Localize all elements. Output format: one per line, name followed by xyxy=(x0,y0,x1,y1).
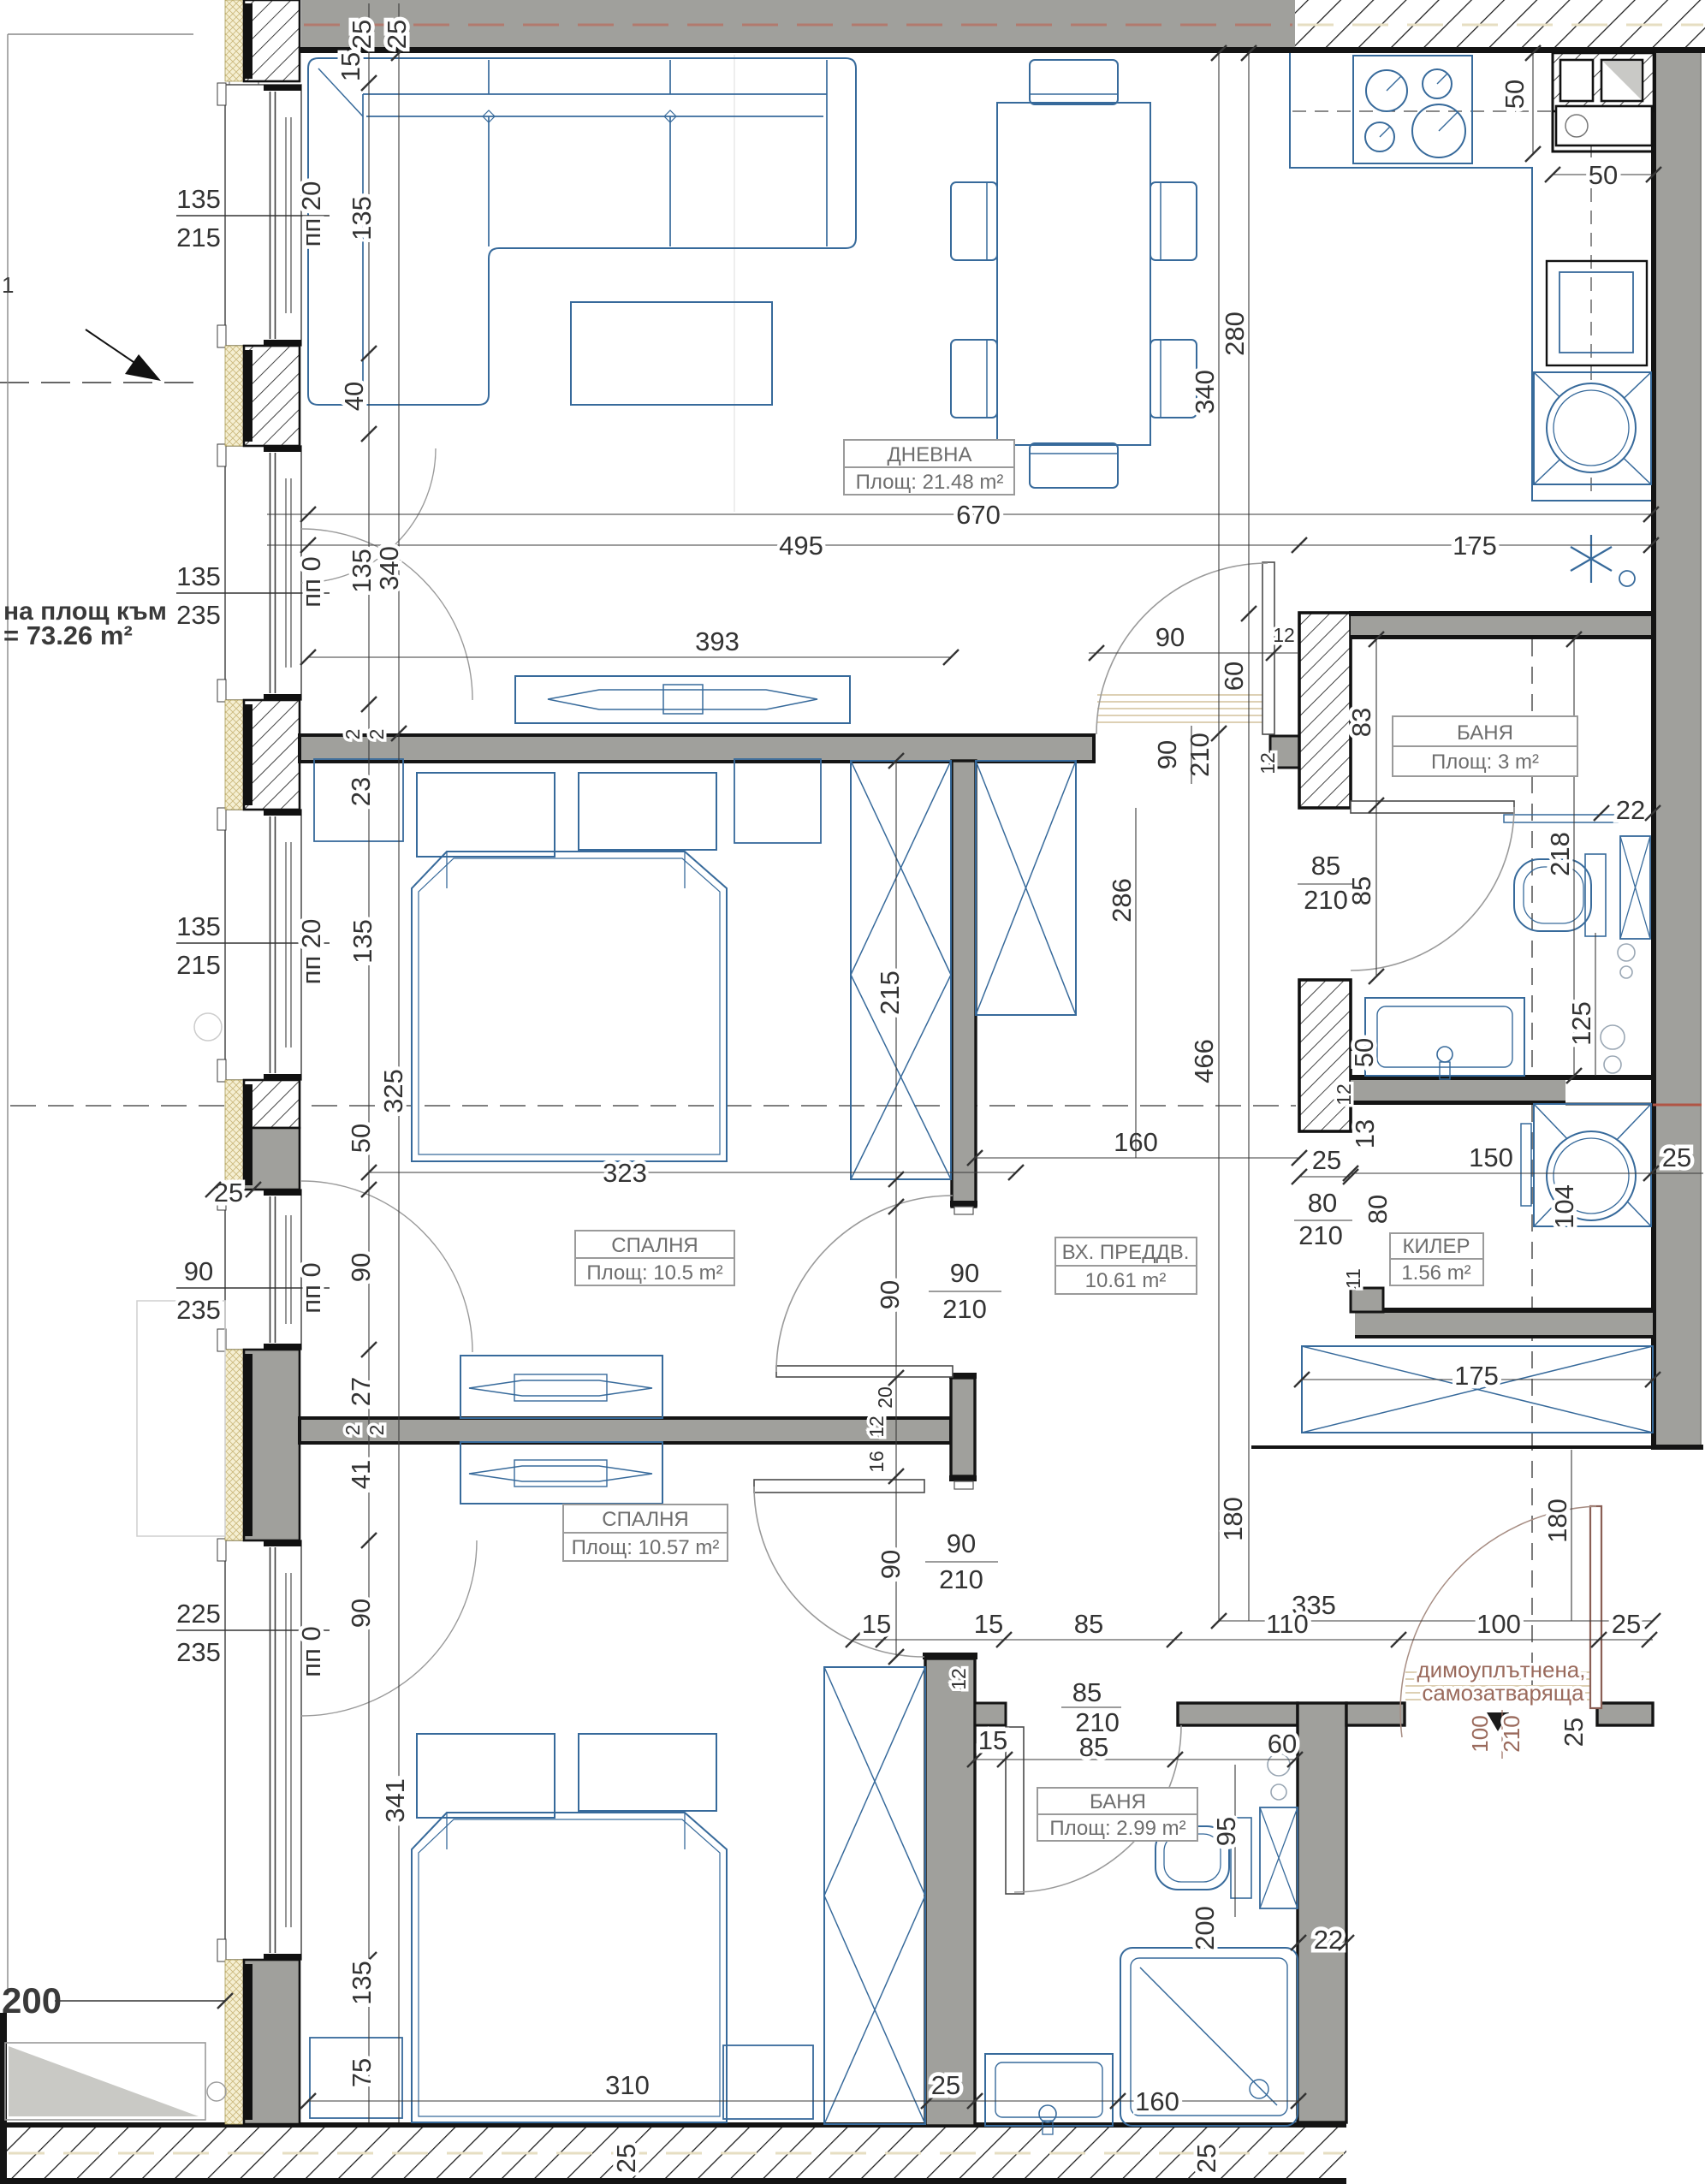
svg-text:самозатваряща: самозатваряща xyxy=(1422,1680,1584,1706)
svg-text:90: 90 xyxy=(950,1258,979,1288)
svg-text:90: 90 xyxy=(184,1256,213,1286)
svg-text:95: 95 xyxy=(1211,1817,1241,1846)
svg-text:25: 25 xyxy=(1312,1145,1341,1175)
svg-text:15: 15 xyxy=(978,1725,1007,1755)
svg-text:340: 340 xyxy=(374,546,404,591)
svg-text:Площ: 10.5 m²: Площ: 10.5 m² xyxy=(586,1261,722,1285)
svg-text:135: 135 xyxy=(347,1961,377,2005)
svg-text:41: 41 xyxy=(346,1460,376,1489)
svg-text:175: 175 xyxy=(1453,531,1497,561)
svg-text:210: 210 xyxy=(1075,1707,1120,1737)
svg-text:Площ: 21.48 m²: Площ: 21.48 m² xyxy=(856,471,1004,494)
svg-text:пп 20: пп 20 xyxy=(296,919,326,985)
svg-text:85: 85 xyxy=(1072,1677,1102,1707)
svg-text:димоуплътнена,: димоуплътнена, xyxy=(1417,1657,1585,1683)
svg-text:135: 135 xyxy=(176,911,221,941)
svg-text:СПАЛНЯ: СПАЛНЯ xyxy=(611,1234,698,1257)
svg-text:25: 25 xyxy=(1191,2144,1221,2173)
svg-text:50: 50 xyxy=(1589,160,1618,190)
svg-text:75: 75 xyxy=(347,2058,377,2087)
svg-text:БАНЯ: БАНЯ xyxy=(1090,1790,1146,1813)
svg-text:235: 235 xyxy=(176,1637,221,1667)
svg-text:135: 135 xyxy=(347,196,377,240)
svg-text:25: 25 xyxy=(214,1178,243,1208)
svg-text:215: 215 xyxy=(875,970,905,1015)
svg-text:200: 200 xyxy=(1190,1906,1220,1950)
svg-text:341: 341 xyxy=(380,1778,410,1823)
svg-text:670: 670 xyxy=(956,500,1001,530)
svg-text:ВХ. ПРЕДДВ.: ВХ. ПРЕДДВ. xyxy=(1062,1241,1190,1264)
svg-text:180: 180 xyxy=(1542,1499,1572,1543)
svg-text:150: 150 xyxy=(1469,1142,1513,1172)
svg-text:25: 25 xyxy=(931,2070,960,2100)
svg-text:25: 25 xyxy=(382,20,412,49)
svg-text:495: 495 xyxy=(779,531,823,561)
svg-text:25: 25 xyxy=(1559,1718,1589,1747)
svg-text:310: 310 xyxy=(605,2070,650,2100)
svg-text:90: 90 xyxy=(1152,740,1182,769)
svg-text:180: 180 xyxy=(1218,1497,1248,1541)
svg-text:пп 0: пп 0 xyxy=(296,556,326,607)
svg-text:340: 340 xyxy=(1190,370,1220,414)
svg-text:104: 104 xyxy=(1549,1184,1579,1229)
svg-text:2: 2 xyxy=(342,729,364,740)
svg-text:210: 210 xyxy=(1298,1220,1343,1250)
svg-text:50: 50 xyxy=(1349,1038,1379,1067)
svg-text:135: 135 xyxy=(348,919,377,964)
svg-text:12: 12 xyxy=(1256,752,1279,774)
svg-text:210: 210 xyxy=(939,1564,983,1594)
svg-text:2: 2 xyxy=(365,1425,388,1436)
svg-text:15: 15 xyxy=(862,1609,891,1639)
svg-text:85: 85 xyxy=(1346,876,1376,905)
svg-text:215: 215 xyxy=(176,950,221,980)
svg-text:СПАЛНЯ: СПАЛНЯ xyxy=(602,1508,689,1531)
svg-text:80: 80 xyxy=(1308,1188,1337,1218)
svg-text:БАНЯ: БАНЯ xyxy=(1457,721,1513,745)
svg-text:215: 215 xyxy=(176,223,221,252)
svg-text:90: 90 xyxy=(1155,622,1185,652)
svg-text:90: 90 xyxy=(876,1550,906,1579)
svg-text:323: 323 xyxy=(603,1158,647,1188)
svg-text:13: 13 xyxy=(1350,1119,1380,1148)
svg-text:60: 60 xyxy=(1268,1729,1297,1759)
svg-text:пп 0: пп 0 xyxy=(296,1262,326,1313)
svg-text:1.56 m²: 1.56 m² xyxy=(1401,1261,1470,1285)
svg-text:25: 25 xyxy=(347,20,377,49)
svg-text:210: 210 xyxy=(1185,733,1215,777)
svg-text:280: 280 xyxy=(1220,312,1250,356)
svg-text:160: 160 xyxy=(1135,2086,1179,2116)
svg-text:83: 83 xyxy=(1346,708,1376,737)
svg-text:2: 2 xyxy=(365,729,388,740)
svg-text:15: 15 xyxy=(974,1609,1003,1639)
svg-text:175: 175 xyxy=(1454,1361,1499,1391)
svg-text:12: 12 xyxy=(948,1668,970,1690)
svg-text:10.61 m²: 10.61 m² xyxy=(1085,1269,1167,1292)
svg-text:Площ: 2.99 m²: Площ: 2.99 m² xyxy=(1049,1817,1185,1840)
svg-text:12: 12 xyxy=(865,1415,888,1438)
svg-text:16: 16 xyxy=(865,1451,888,1473)
svg-text:100: 100 xyxy=(1476,1609,1521,1639)
svg-text:40: 40 xyxy=(339,382,369,411)
svg-text:286: 286 xyxy=(1107,878,1137,923)
svg-text:100: 100 xyxy=(1467,1715,1493,1752)
svg-text:12: 12 xyxy=(1273,624,1295,646)
svg-text:225: 225 xyxy=(176,1599,221,1629)
svg-text:23: 23 xyxy=(346,777,376,806)
svg-text:22: 22 xyxy=(1616,795,1645,825)
svg-text:235: 235 xyxy=(176,1295,221,1325)
svg-text:218: 218 xyxy=(1545,832,1575,876)
svg-text:20: 20 xyxy=(874,1386,896,1409)
svg-text:2: 2 xyxy=(342,1425,364,1436)
svg-text:15: 15 xyxy=(336,52,365,81)
svg-text:125: 125 xyxy=(1566,1001,1596,1046)
svg-text:12: 12 xyxy=(1333,1083,1355,1106)
svg-text:25: 25 xyxy=(1662,1142,1691,1172)
svg-text:325: 325 xyxy=(378,1069,408,1113)
svg-text:466: 466 xyxy=(1189,1039,1219,1083)
svg-text:90: 90 xyxy=(346,1599,376,1628)
svg-text:ДНЕВНА: ДНЕВНА xyxy=(888,443,972,466)
svg-text:50: 50 xyxy=(1500,80,1530,109)
svg-text:135: 135 xyxy=(347,549,377,593)
svg-text:90: 90 xyxy=(875,1280,905,1309)
svg-text:393: 393 xyxy=(695,626,740,656)
svg-text:210: 210 xyxy=(1304,885,1348,915)
svg-text:60: 60 xyxy=(1219,662,1249,691)
svg-text:210: 210 xyxy=(1499,1715,1524,1752)
svg-text:25: 25 xyxy=(1612,1609,1641,1639)
svg-text:= 73.26 m²: = 73.26 m² xyxy=(3,620,133,650)
svg-text:КИЛЕР: КИЛЕР xyxy=(1403,1235,1470,1258)
svg-text:85: 85 xyxy=(1311,851,1340,881)
svg-text:135: 135 xyxy=(176,184,221,214)
svg-text:210: 210 xyxy=(942,1294,987,1324)
svg-text:200: 200 xyxy=(2,1980,62,2021)
svg-text:135: 135 xyxy=(176,561,221,591)
svg-text:1: 1 xyxy=(2,272,14,298)
svg-text:пп 20: пп 20 xyxy=(296,181,326,247)
svg-text:11: 11 xyxy=(1342,1268,1364,1289)
svg-text:85: 85 xyxy=(1074,1609,1103,1639)
svg-text:235: 235 xyxy=(176,600,221,630)
svg-text:Площ: 10.57 m²: Площ: 10.57 m² xyxy=(572,1536,720,1559)
svg-text:Площ: 3 m²: Площ: 3 m² xyxy=(1431,751,1539,774)
svg-text:110: 110 xyxy=(1266,1609,1308,1639)
svg-text:90: 90 xyxy=(947,1528,976,1558)
svg-text:27: 27 xyxy=(346,1377,376,1406)
svg-text:50: 50 xyxy=(346,1124,376,1153)
svg-text:80: 80 xyxy=(1363,1195,1393,1224)
svg-text:25: 25 xyxy=(611,2144,641,2173)
svg-text:90: 90 xyxy=(346,1253,376,1282)
svg-text:пп 0: пп 0 xyxy=(296,1626,326,1677)
